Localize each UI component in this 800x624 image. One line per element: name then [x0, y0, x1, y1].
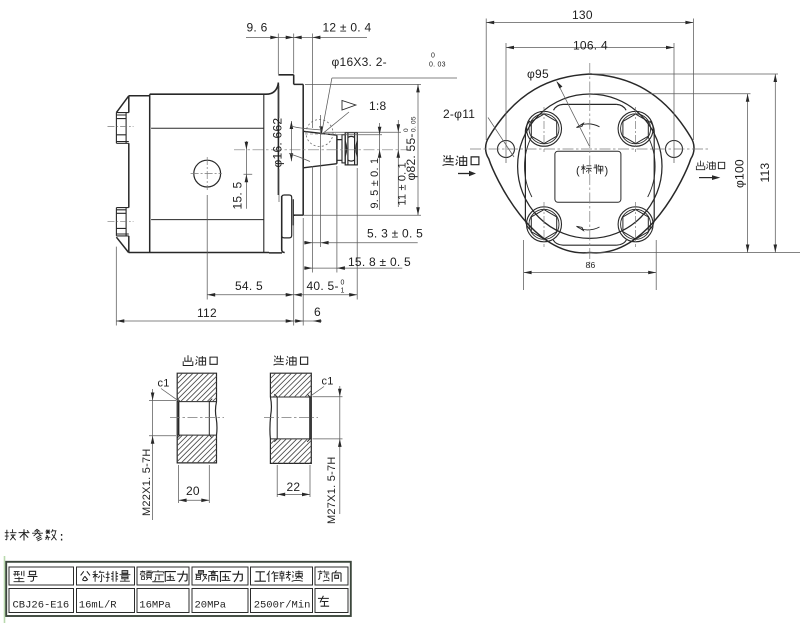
- svg-text:130: 130: [572, 8, 593, 22]
- svg-text:16mL/R: 16mL/R: [79, 600, 118, 612]
- svg-text:0. 05: 0. 05: [411, 116, 418, 132]
- svg-text:20MPa: 20MPa: [195, 600, 227, 612]
- svg-text:5. 3 ± 0. 5: 5. 3 ± 0. 5: [367, 227, 423, 241]
- svg-text:12 ± 0. 4: 12 ± 0. 4: [323, 21, 372, 35]
- svg-text:15. 5: 15. 5: [231, 181, 245, 209]
- svg-text:40. 5-: 40. 5-: [307, 279, 339, 293]
- svg-text:16MPa: 16MPa: [139, 600, 171, 612]
- svg-text:9. 5 ± 0. 1: 9. 5 ± 0. 1: [369, 158, 381, 209]
- svg-text:2-φ11: 2-φ11: [443, 107, 475, 121]
- svg-text:φ16X3. 2-: φ16X3. 2-: [332, 55, 387, 69]
- svg-text:2500r/Min: 2500r/Min: [254, 600, 311, 612]
- svg-text:c1: c1: [322, 376, 334, 388]
- svg-text:φ95: φ95: [527, 67, 549, 81]
- svg-text:1:8: 1:8: [369, 99, 387, 113]
- svg-text:0. 03: 0. 03: [429, 62, 446, 69]
- svg-text:CBJ26-E16: CBJ26-E16: [13, 600, 70, 612]
- svg-text:1: 1: [341, 288, 345, 295]
- svg-text:M27X1. 5-7H: M27X1. 5-7H: [326, 456, 338, 524]
- svg-text:0: 0: [403, 128, 410, 132]
- svg-text:15. 8 ± 0. 5: 15. 8 ± 0. 5: [348, 255, 411, 269]
- svg-text:φ16. 662: φ16. 662: [271, 118, 285, 168]
- svg-text:20: 20: [186, 484, 200, 498]
- svg-text:M22X1. 5-7H: M22X1. 5-7H: [141, 448, 153, 516]
- svg-text:(: (: [576, 165, 580, 177]
- svg-text:c1: c1: [158, 378, 170, 390]
- svg-text:113: 113: [758, 163, 772, 183]
- svg-text:φ100: φ100: [733, 159, 747, 188]
- svg-text:112: 112: [197, 306, 217, 320]
- svg-text:54. 5: 54. 5: [235, 279, 263, 293]
- svg-text:86: 86: [586, 260, 596, 270]
- svg-text::: :: [58, 531, 65, 545]
- svg-text:11 ± 0. 1: 11 ± 0. 1: [397, 162, 409, 205]
- svg-text:6: 6: [314, 305, 321, 319]
- svg-text:22: 22: [287, 480, 301, 494]
- svg-text:9. 6: 9. 6: [247, 21, 268, 35]
- svg-text:0: 0: [431, 53, 435, 60]
- svg-text:0: 0: [341, 280, 345, 287]
- svg-text:): ): [605, 165, 609, 177]
- svg-text:106. 4: 106. 4: [573, 39, 608, 53]
